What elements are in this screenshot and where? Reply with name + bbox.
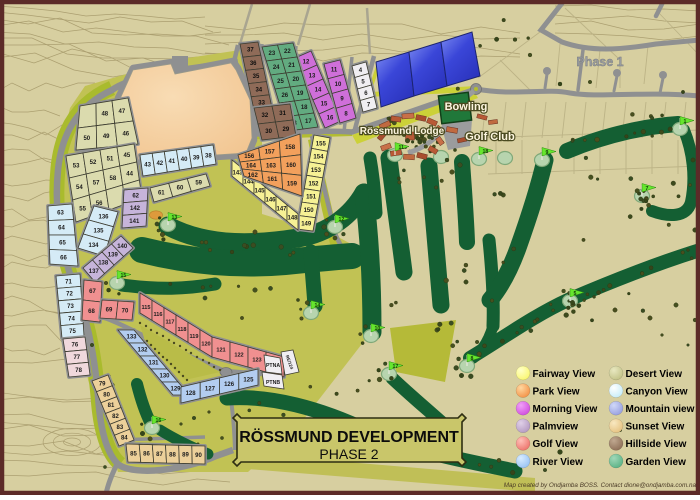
svg-text:25: 25: [277, 79, 284, 85]
svg-text:60: 60: [177, 186, 184, 192]
svg-text:9: 9: [546, 150, 549, 156]
svg-text:21: 21: [288, 63, 295, 69]
svg-text:78: 78: [75, 368, 82, 374]
svg-text:14: 14: [315, 88, 322, 94]
svg-text:135: 135: [93, 229, 104, 235]
svg-text:64: 64: [58, 226, 65, 232]
svg-text:Mountain view: Mountain view: [626, 404, 695, 415]
svg-text:77: 77: [73, 355, 80, 361]
svg-text:10: 10: [375, 326, 381, 332]
svg-text:11: 11: [399, 145, 405, 151]
svg-text:122: 122: [234, 353, 243, 359]
svg-text:133: 133: [126, 335, 137, 341]
svg-text:80: 80: [103, 392, 110, 398]
svg-text:162: 162: [248, 173, 259, 179]
svg-text:17: 17: [393, 364, 399, 370]
svg-text:52: 52: [90, 160, 97, 166]
svg-text:57: 57: [93, 180, 100, 186]
svg-text:76: 76: [72, 342, 79, 348]
svg-text:68: 68: [88, 309, 95, 315]
svg-text:18: 18: [483, 149, 489, 155]
svg-text:Morning View: Morning View: [533, 404, 598, 415]
svg-text:45: 45: [124, 153, 131, 159]
svg-text:8: 8: [471, 356, 474, 362]
svg-text:47: 47: [119, 109, 126, 115]
svg-text:PTNA: PTNA: [266, 363, 280, 369]
svg-text:17: 17: [305, 119, 312, 125]
svg-text:141: 141: [129, 219, 140, 225]
svg-text:119: 119: [189, 334, 198, 340]
svg-text:Hillside View: Hillside View: [626, 439, 687, 450]
svg-text:50: 50: [83, 136, 90, 142]
svg-text:55: 55: [79, 206, 86, 212]
svg-text:48: 48: [101, 111, 108, 117]
svg-text:Rössmund Lodge: Rössmund Lodge: [360, 126, 445, 137]
svg-text:152: 152: [308, 181, 319, 187]
svg-text:81: 81: [108, 403, 115, 409]
svg-text:120: 120: [201, 341, 210, 347]
svg-text:127: 127: [205, 386, 216, 392]
svg-text:116: 116: [153, 312, 162, 318]
svg-text:88: 88: [169, 452, 176, 458]
svg-text:163: 163: [266, 163, 277, 169]
svg-text:49: 49: [103, 134, 110, 140]
svg-text:16: 16: [327, 116, 334, 122]
svg-text:40: 40: [181, 157, 188, 163]
svg-text:129: 129: [170, 387, 181, 393]
svg-text:137: 137: [89, 269, 100, 275]
svg-text:1: 1: [684, 119, 687, 125]
svg-text:83: 83: [117, 425, 124, 431]
svg-text:5: 5: [574, 291, 577, 297]
svg-text:18: 18: [301, 105, 308, 111]
svg-text:75: 75: [69, 329, 76, 335]
svg-text:65: 65: [59, 241, 66, 247]
svg-text:142: 142: [130, 206, 141, 212]
svg-text:86: 86: [143, 452, 150, 458]
svg-text:Golf View: Golf View: [533, 439, 579, 450]
svg-text:89: 89: [182, 453, 189, 459]
svg-text:72: 72: [66, 292, 73, 298]
svg-text:158: 158: [285, 145, 296, 151]
svg-text:157: 157: [265, 150, 276, 156]
svg-text:41: 41: [169, 159, 176, 165]
svg-text:Garden View: Garden View: [626, 457, 687, 468]
svg-text:134: 134: [88, 243, 99, 249]
svg-text:84: 84: [121, 436, 128, 442]
svg-text:139: 139: [108, 253, 119, 259]
svg-text:153: 153: [311, 168, 322, 174]
svg-text:126: 126: [224, 382, 235, 388]
svg-text:149: 149: [301, 221, 312, 227]
svg-text:42: 42: [156, 161, 163, 167]
svg-text:38: 38: [205, 154, 212, 160]
svg-text:23: 23: [269, 51, 276, 57]
svg-text:117: 117: [165, 319, 174, 325]
svg-text:20: 20: [292, 77, 299, 83]
svg-text:Desert View: Desert View: [626, 369, 683, 380]
svg-text:Phase 1: Phase 1: [576, 55, 623, 69]
svg-text:14: 14: [315, 303, 321, 309]
svg-text:Map created by Ondjamba BOSS.: Map created by Ondjamba BOSS. Contact di…: [504, 482, 697, 489]
svg-text:10: 10: [335, 82, 342, 88]
svg-text:130: 130: [159, 374, 170, 380]
svg-text:Golf Club: Golf Club: [465, 131, 515, 143]
svg-text:148: 148: [287, 216, 298, 222]
svg-text:123: 123: [252, 358, 261, 364]
svg-text:13: 13: [172, 215, 178, 221]
svg-text:138: 138: [98, 261, 109, 267]
svg-text:145: 145: [254, 189, 265, 195]
svg-text:156: 156: [244, 154, 255, 160]
svg-text:34: 34: [255, 87, 262, 93]
svg-text:13: 13: [309, 74, 316, 80]
svg-text:59: 59: [195, 181, 202, 187]
svg-text:15: 15: [321, 102, 328, 108]
svg-text:24: 24: [273, 65, 280, 71]
svg-text:RÖSSMUND DEVELOPMENT: RÖSSMUND DEVELOPMENT: [239, 427, 459, 446]
svg-text:PHASE 2: PHASE 2: [319, 446, 378, 462]
svg-text:151: 151: [306, 195, 317, 201]
svg-text:115: 115: [141, 305, 150, 311]
svg-text:19: 19: [297, 91, 304, 97]
svg-text:150: 150: [304, 208, 315, 214]
svg-text:132: 132: [137, 348, 148, 354]
svg-text:87: 87: [156, 452, 163, 458]
svg-text:140: 140: [117, 244, 128, 250]
svg-text:164: 164: [246, 164, 257, 170]
svg-text:51: 51: [107, 156, 114, 162]
svg-text:125: 125: [243, 377, 254, 383]
svg-text:146: 146: [265, 198, 276, 204]
svg-text:46: 46: [122, 132, 129, 138]
svg-text:12: 12: [303, 60, 310, 66]
svg-text:PTNB: PTNB: [266, 380, 280, 386]
svg-text:Sunset View: Sunset View: [626, 422, 685, 433]
svg-text:82: 82: [112, 414, 119, 420]
svg-text:160: 160: [286, 163, 297, 169]
svg-text:39: 39: [193, 155, 200, 161]
svg-text:118: 118: [177, 327, 186, 333]
svg-text:155: 155: [316, 141, 327, 147]
svg-text:53: 53: [73, 163, 80, 169]
svg-text:121: 121: [216, 348, 225, 354]
svg-text:30: 30: [265, 129, 272, 135]
svg-text:154: 154: [313, 155, 324, 161]
svg-text:61: 61: [158, 191, 165, 197]
svg-text:River View: River View: [533, 457, 584, 468]
svg-text:22: 22: [284, 49, 291, 55]
svg-text:31: 31: [279, 111, 286, 117]
svg-text:159: 159: [287, 182, 298, 188]
svg-text:Canyon View: Canyon View: [626, 386, 688, 397]
svg-text:11: 11: [331, 67, 338, 73]
svg-text:36: 36: [250, 61, 257, 67]
svg-text:128: 128: [186, 391, 197, 397]
svg-text:74: 74: [68, 317, 75, 323]
svg-text:71: 71: [65, 279, 72, 285]
svg-text:147: 147: [276, 207, 287, 213]
svg-text:26: 26: [281, 93, 288, 99]
svg-text:Bowling: Bowling: [445, 101, 488, 113]
svg-text:66: 66: [60, 256, 67, 262]
svg-text:58: 58: [110, 176, 117, 182]
svg-text:37: 37: [247, 48, 254, 54]
svg-text:70: 70: [122, 309, 129, 315]
svg-text:12: 12: [339, 217, 345, 223]
svg-text:Fairway View: Fairway View: [533, 369, 596, 380]
svg-text:85: 85: [130, 451, 137, 457]
svg-text:63: 63: [57, 211, 64, 217]
svg-text:Park View: Park View: [533, 386, 580, 397]
svg-text:62: 62: [132, 193, 139, 199]
svg-text:35: 35: [253, 74, 260, 80]
svg-text:44: 44: [126, 171, 133, 177]
svg-text:15: 15: [121, 273, 127, 279]
svg-text:69: 69: [106, 308, 113, 314]
svg-text:79: 79: [99, 382, 106, 388]
svg-text:161: 161: [267, 177, 278, 183]
svg-text:73: 73: [67, 304, 74, 310]
svg-text:90: 90: [195, 453, 202, 459]
svg-text:67: 67: [89, 289, 96, 295]
svg-text:Palmview: Palmview: [533, 422, 579, 433]
svg-text:54: 54: [76, 185, 83, 191]
svg-text:7: 7: [646, 186, 649, 192]
svg-text:32: 32: [262, 113, 269, 119]
svg-text:16: 16: [156, 418, 162, 424]
svg-text:136: 136: [98, 214, 109, 220]
svg-text:131: 131: [148, 361, 159, 367]
svg-text:29: 29: [283, 127, 290, 133]
svg-text:43: 43: [144, 163, 151, 169]
